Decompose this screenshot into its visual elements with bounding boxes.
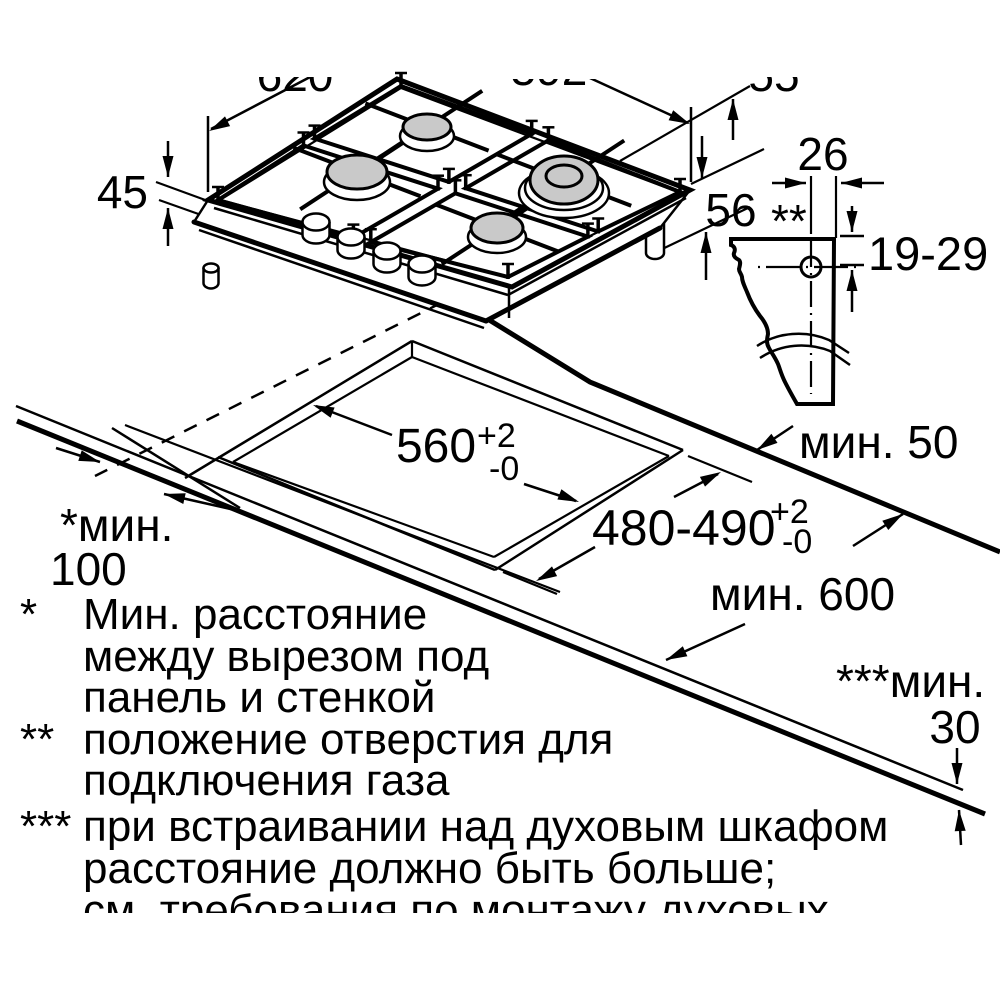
svg-text:мин. 50: мин. 50: [799, 416, 958, 468]
svg-text:-0: -0: [782, 523, 812, 561]
svg-text:560: 560: [396, 420, 476, 473]
svg-text:***: ***: [20, 802, 71, 851]
svg-text:мин. 600: мин. 600: [710, 568, 895, 620]
svg-text:-0: -0: [489, 450, 519, 488]
svg-text:**: **: [20, 715, 54, 764]
svg-text:подключения газа: подключения газа: [83, 756, 450, 805]
svg-text:*: *: [20, 590, 37, 639]
svg-text:45: 45: [97, 166, 148, 218]
svg-text:56: 56: [705, 184, 756, 236]
svg-text:***мин.: ***мин.: [836, 655, 985, 707]
svg-text:480-490: 480-490: [592, 500, 776, 556]
svg-text:100: 100: [50, 543, 127, 595]
svg-text:30: 30: [929, 701, 980, 753]
svg-text:26: 26: [797, 128, 848, 180]
svg-text:19-29: 19-29: [868, 227, 988, 280]
